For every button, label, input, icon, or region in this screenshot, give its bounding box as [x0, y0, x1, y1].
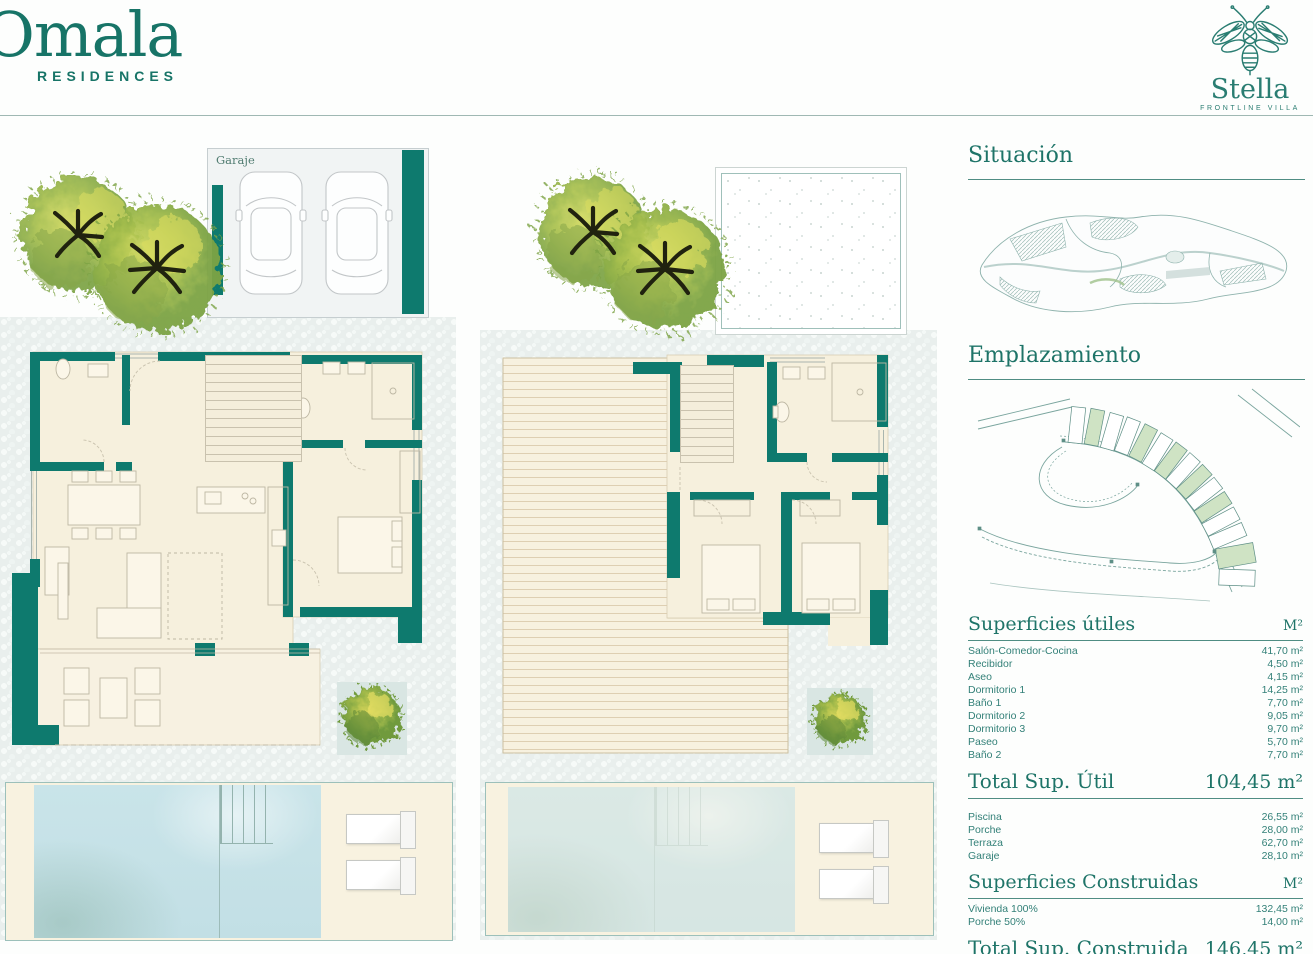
table-row: Dormitorio 39,70 m²	[968, 723, 1303, 736]
bush-tile	[337, 682, 407, 755]
table-row: Dormitorio 29,05 m²	[968, 710, 1303, 723]
emplazamiento-map	[970, 387, 1300, 609]
superficies-construidas-title: Superficies Construidas	[968, 871, 1198, 893]
table-row: Porche 50%14,00 m²	[968, 916, 1303, 929]
table-rule	[968, 798, 1303, 799]
surface-tables: Superficies útiles M² Salón-Comedor-Coci…	[968, 613, 1303, 954]
table-row: Paseo5,70 m²	[968, 736, 1303, 749]
superficies-utiles-unit: M²	[1283, 618, 1303, 634]
emplazamiento-rule	[968, 379, 1305, 380]
superficies-utiles-header: Superficies útiles M²	[968, 613, 1303, 635]
table-row: Dormitorio 114,25 m²	[968, 684, 1303, 697]
table-row: Recibidor4,50 m²	[968, 658, 1303, 671]
table-row: Baño 17,70 m²	[968, 697, 1303, 710]
situacion-rule	[968, 179, 1305, 180]
stella-logo: Stella FRONTLINE VILLA	[1190, 4, 1310, 112]
stairs	[680, 365, 734, 463]
brand-subtitle: RESIDENCES	[37, 68, 182, 84]
superficies-construidas-unit: M²	[1283, 876, 1303, 892]
omala-logo: Omala RESIDENCES	[0, 2, 182, 84]
first-floor-plan: Terraza Baño 2 Paso Dormitorio 3 Dormito…	[480, 115, 937, 954]
superficies-construidas-rows: Vivienda 100%132,45 m² Porche 50%14,00 m…	[968, 903, 1303, 929]
plots	[978, 406, 1256, 586]
table-row: Vivienda 100%132,45 m²	[968, 903, 1303, 916]
total-sup-util: Total Sup. Útil 104,45 m²	[968, 769, 1303, 793]
table-rule	[968, 898, 1303, 899]
table-row: Porche28,00 m²	[968, 824, 1303, 837]
total-sup-construida: Total Sup. Construida 146,45 m²	[968, 936, 1303, 954]
villa-subtitle: FRONTLINE VILLA	[1190, 105, 1310, 112]
table-row: Terraza62,70 m²	[968, 837, 1303, 850]
superficies-utiles-title: Superficies útiles	[968, 613, 1135, 635]
table-row: Garaje28,10 m²	[968, 850, 1303, 863]
table-row: Piscina26,55 m²	[968, 811, 1303, 824]
sidebar: Situación Emplazamiento	[968, 115, 1305, 954]
table-row: Aseo4,15 m²	[968, 671, 1303, 684]
dining-table	[68, 471, 140, 539]
superficies-utiles-rows: Salón-Comedor-Cocina41,70 m² Recibidor4,…	[968, 645, 1303, 762]
table-rule	[968, 640, 1303, 641]
bee-icon	[1207, 4, 1293, 76]
stairs	[205, 355, 302, 462]
bush-tile	[807, 688, 873, 755]
situacion-title: Situación	[968, 143, 1305, 168]
table-row: Baño 27,70 m²	[968, 749, 1303, 762]
brand-name: Omala	[0, 2, 182, 68]
situacion-map	[970, 187, 1300, 333]
trees-icon	[2, 163, 242, 348]
exterior-rows: Piscina26,55 m² Porche28,00 m² Terraza62…	[968, 811, 1303, 863]
villa-name: Stella	[1190, 76, 1310, 104]
table-row: Salón-Comedor-Cocina41,70 m²	[968, 645, 1303, 658]
bush-icon	[337, 682, 407, 755]
ground-floor-plan: Garaje	[0, 115, 456, 954]
bush-icon	[807, 688, 873, 755]
trees-icon	[525, 157, 760, 352]
superficies-construidas-header: Superficies Construidas M²	[968, 871, 1303, 893]
page: Omala RESIDENCES Stella FRONTLINE VILLA	[0, 0, 1313, 954]
emplazamiento-title: Emplazamiento	[968, 343, 1305, 368]
